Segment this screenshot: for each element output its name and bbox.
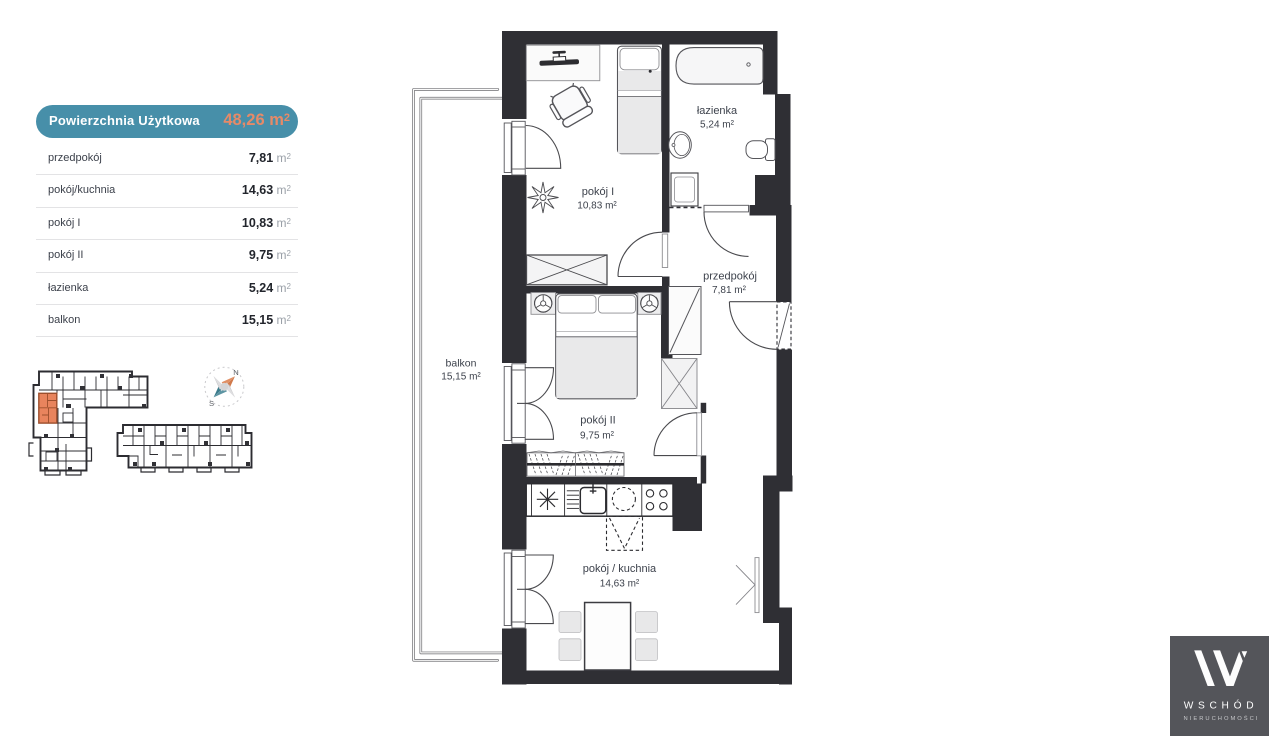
svg-text:łazienka: łazienka <box>697 105 738 117</box>
svg-text:N: N <box>233 368 238 377</box>
svg-text:NIERUCHOMOŚCI: NIERUCHOMOŚCI <box>1184 714 1260 722</box>
svg-text:WSCHÓD: WSCHÓD <box>1184 699 1259 712</box>
svg-text:5,24 m²: 5,24 m² <box>700 120 735 131</box>
svg-text:pokój / kuchnia: pokój / kuchnia <box>583 563 657 575</box>
svg-text:przedpokój: przedpokój <box>703 271 757 283</box>
svg-text:9,75 m²: 9,75 m² <box>580 431 615 442</box>
svg-text:pokój II: pokój II <box>580 415 615 427</box>
svg-text:15,15 m²: 15,15 m² <box>441 372 481 383</box>
svg-text:7,81 m²: 7,81 m² <box>712 285 747 296</box>
svg-text:14,63 m²: 14,63 m² <box>600 579 640 590</box>
svg-text:balkon: balkon <box>446 358 477 370</box>
svg-text:10,83 m²: 10,83 m² <box>577 201 617 212</box>
svg-text:pokój I: pokój I <box>582 186 614 198</box>
svg-text:S: S <box>209 399 214 408</box>
